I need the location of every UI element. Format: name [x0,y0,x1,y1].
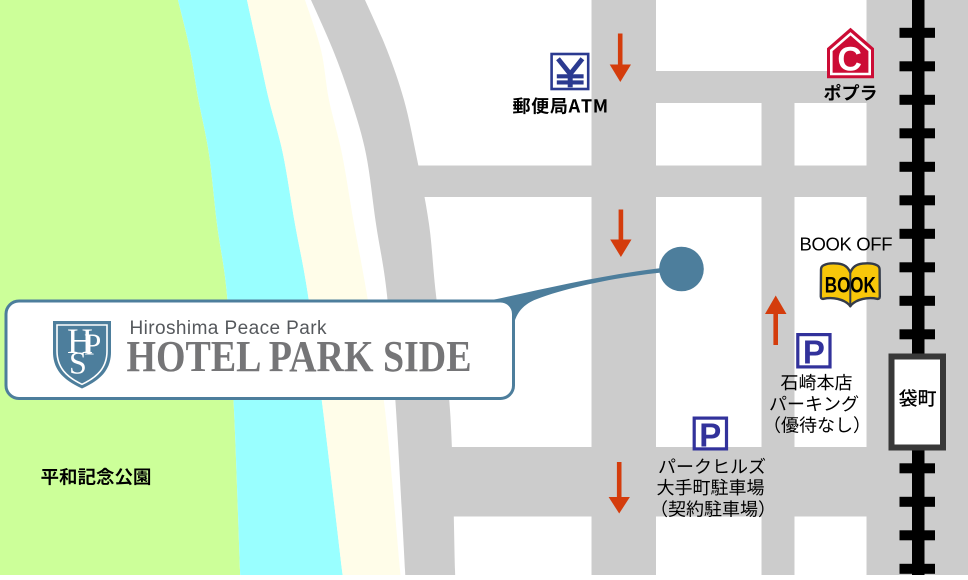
svg-text:HOTEL PARK SIDE: HOTEL PARK SIDE [127,332,472,381]
svg-text:P: P [803,333,825,370]
svg-text:C: C [837,41,862,79]
svg-text:BOOK: BOOK [825,273,876,298]
svg-text:P: P [699,417,721,454]
svg-text:S: S [69,345,87,381]
svg-text:BOOK OFF: BOOK OFF [800,234,893,255]
